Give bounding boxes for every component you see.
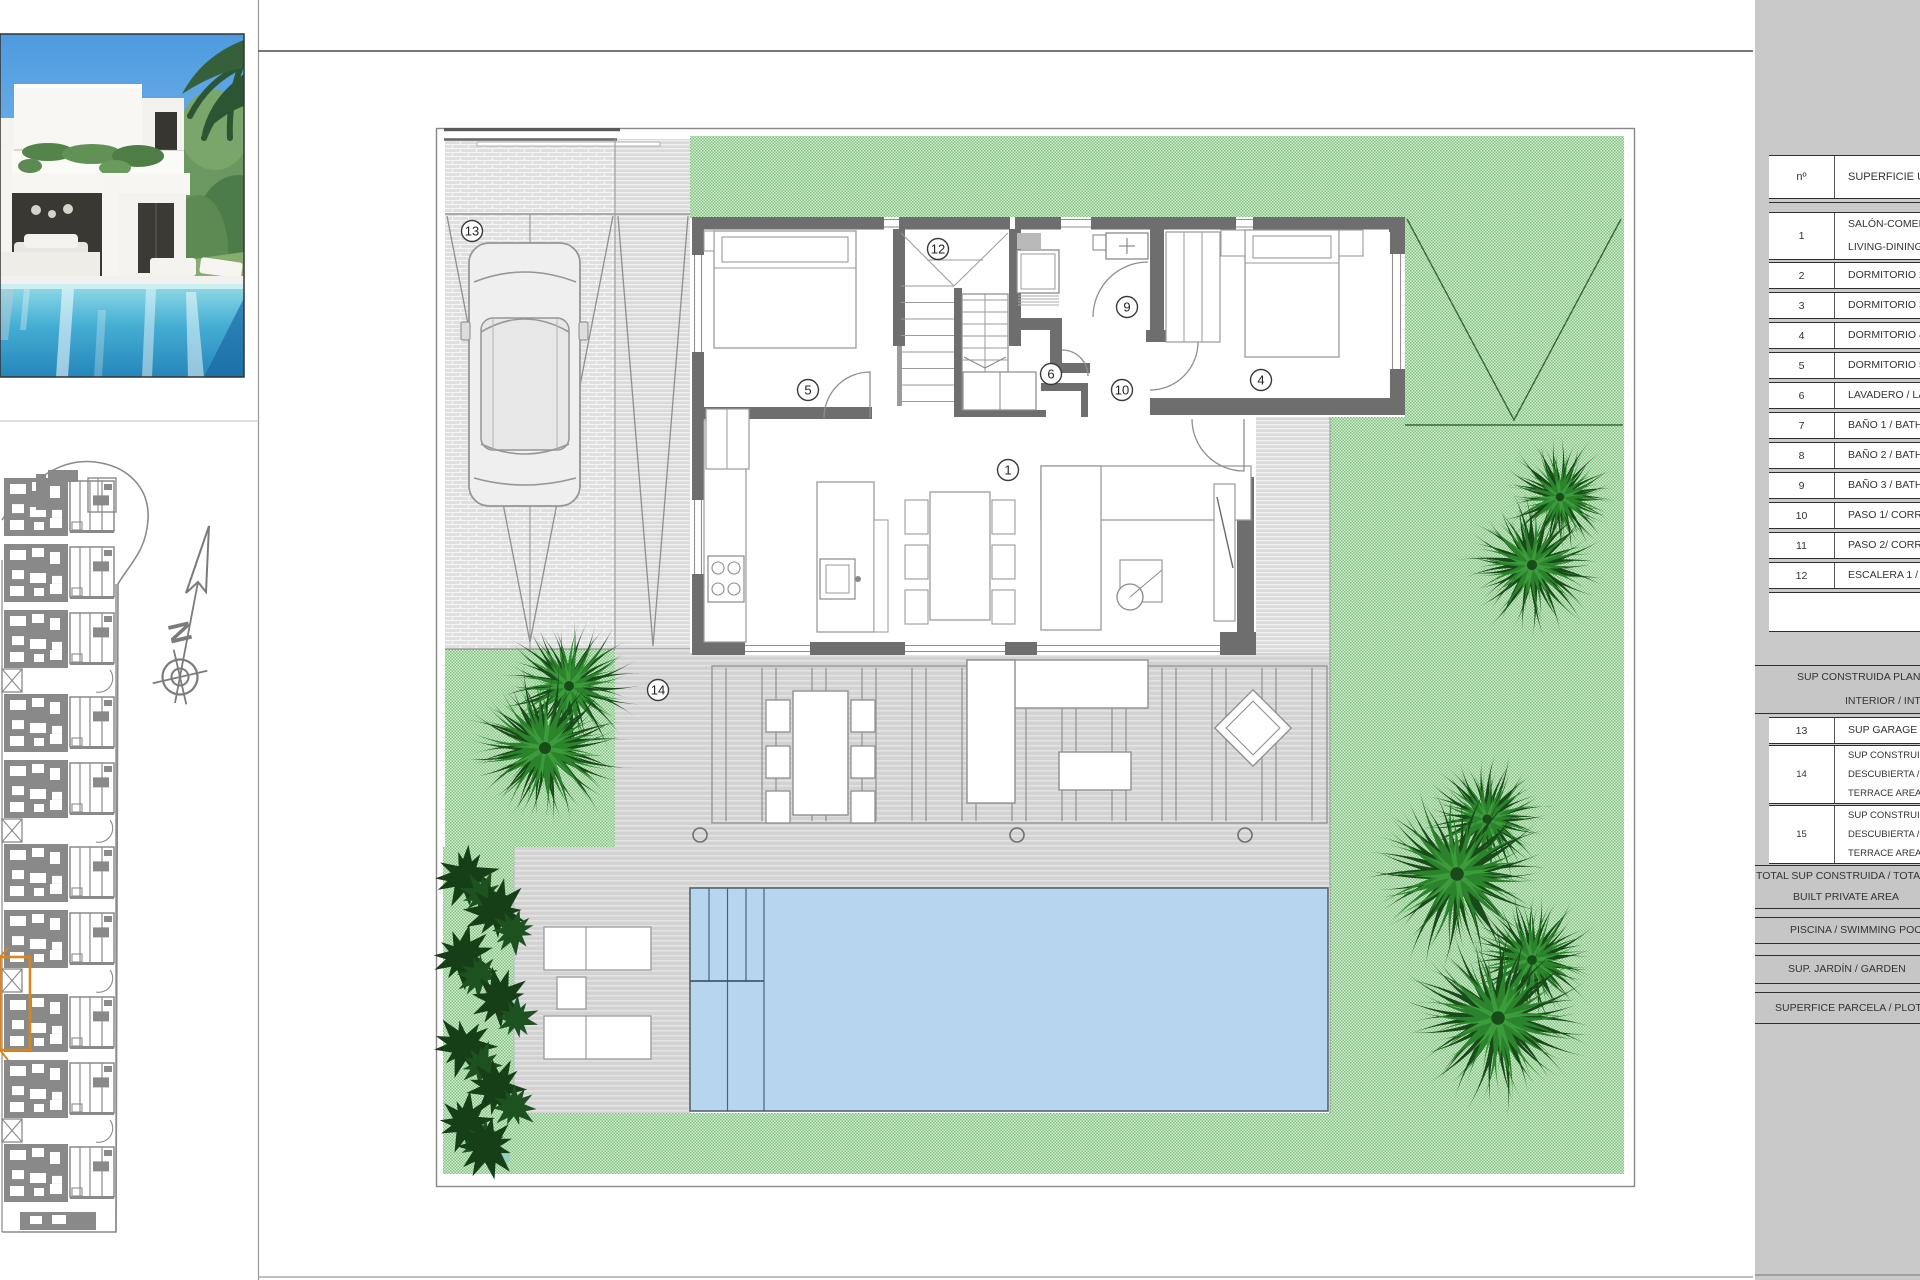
- svg-text:1: 1: [1004, 463, 1011, 478]
- svg-text:9: 9: [1123, 300, 1130, 315]
- svg-text:6: 6: [1047, 367, 1054, 382]
- svg-text:5: 5: [804, 383, 811, 398]
- svg-text:4: 4: [1257, 373, 1264, 388]
- svg-text:12: 12: [931, 242, 945, 257]
- svg-text:13: 13: [465, 224, 479, 239]
- svg-text:14: 14: [651, 683, 665, 698]
- svg-text:10: 10: [1115, 383, 1129, 398]
